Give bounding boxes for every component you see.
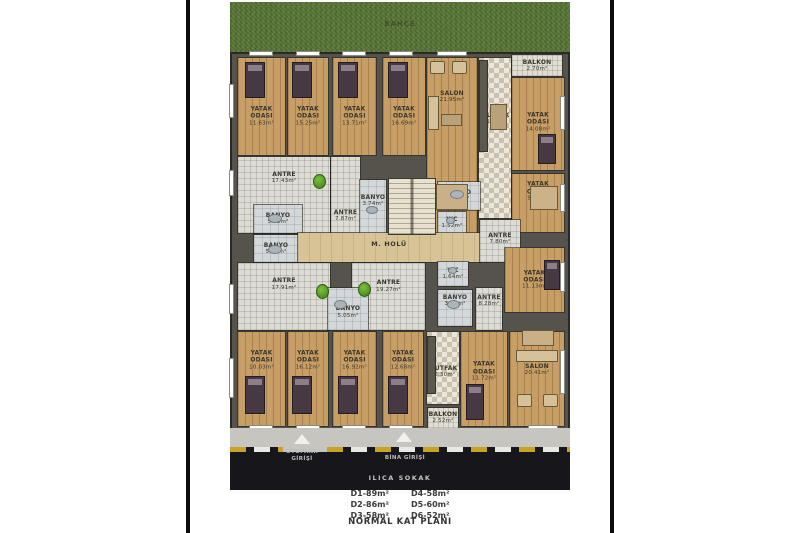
otopark-entrance-arrow-icon [294,434,310,444]
legend-col-left: D1-89m² D2-86m² D3-58m² [351,489,390,521]
legend-col-right: D4-58m² D5-60m² D6-52m² [411,489,450,521]
legend-item: D1-89m² [351,489,390,498]
legend-item: D5-60m² [411,500,450,509]
otopark-entrance-line2: GİRİŞİ [272,456,332,463]
street-name: ILICA SOKAK [230,474,570,482]
garden-label: BAHÇE [230,20,570,28]
legend-item: D4-58m² [411,489,450,498]
building-outline [230,52,570,430]
bina-entrance-arrow-icon [396,432,412,442]
page-frame-right [610,0,614,533]
floor-plan-title: NORMAL KAT PLANI [230,517,570,527]
floor-plan-page: BAHÇE YATAK ODASI11.63m²YATAK ODASI15.25… [0,0,800,533]
legend-item: D2-86m² [351,500,390,509]
bina-entrance-label: BİNA GİRİŞİ [365,455,445,462]
apartment-size-legend: D1-89m² D2-86m² D3-58m² D4-58m² D5-60m² … [230,489,570,521]
page-frame-left [186,0,190,533]
garden: BAHÇE [230,2,570,54]
otopark-entrance-label: OTOPARK GİRİŞİ [272,449,332,463]
